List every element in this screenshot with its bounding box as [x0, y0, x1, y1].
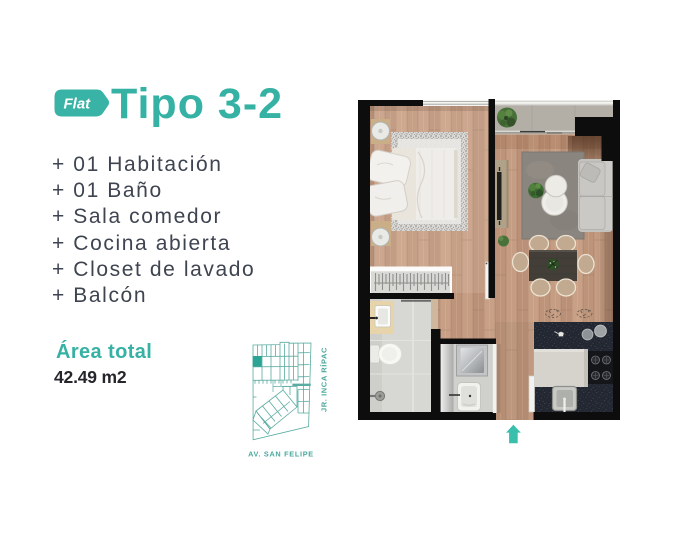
svg-text:JR. INCA RÍPAC: JR. INCA RÍPAC [320, 347, 329, 412]
svg-text:AV. SAN FELIPE: AV. SAN FELIPE [248, 450, 314, 459]
svg-text:Flat: Flat [64, 96, 92, 113]
